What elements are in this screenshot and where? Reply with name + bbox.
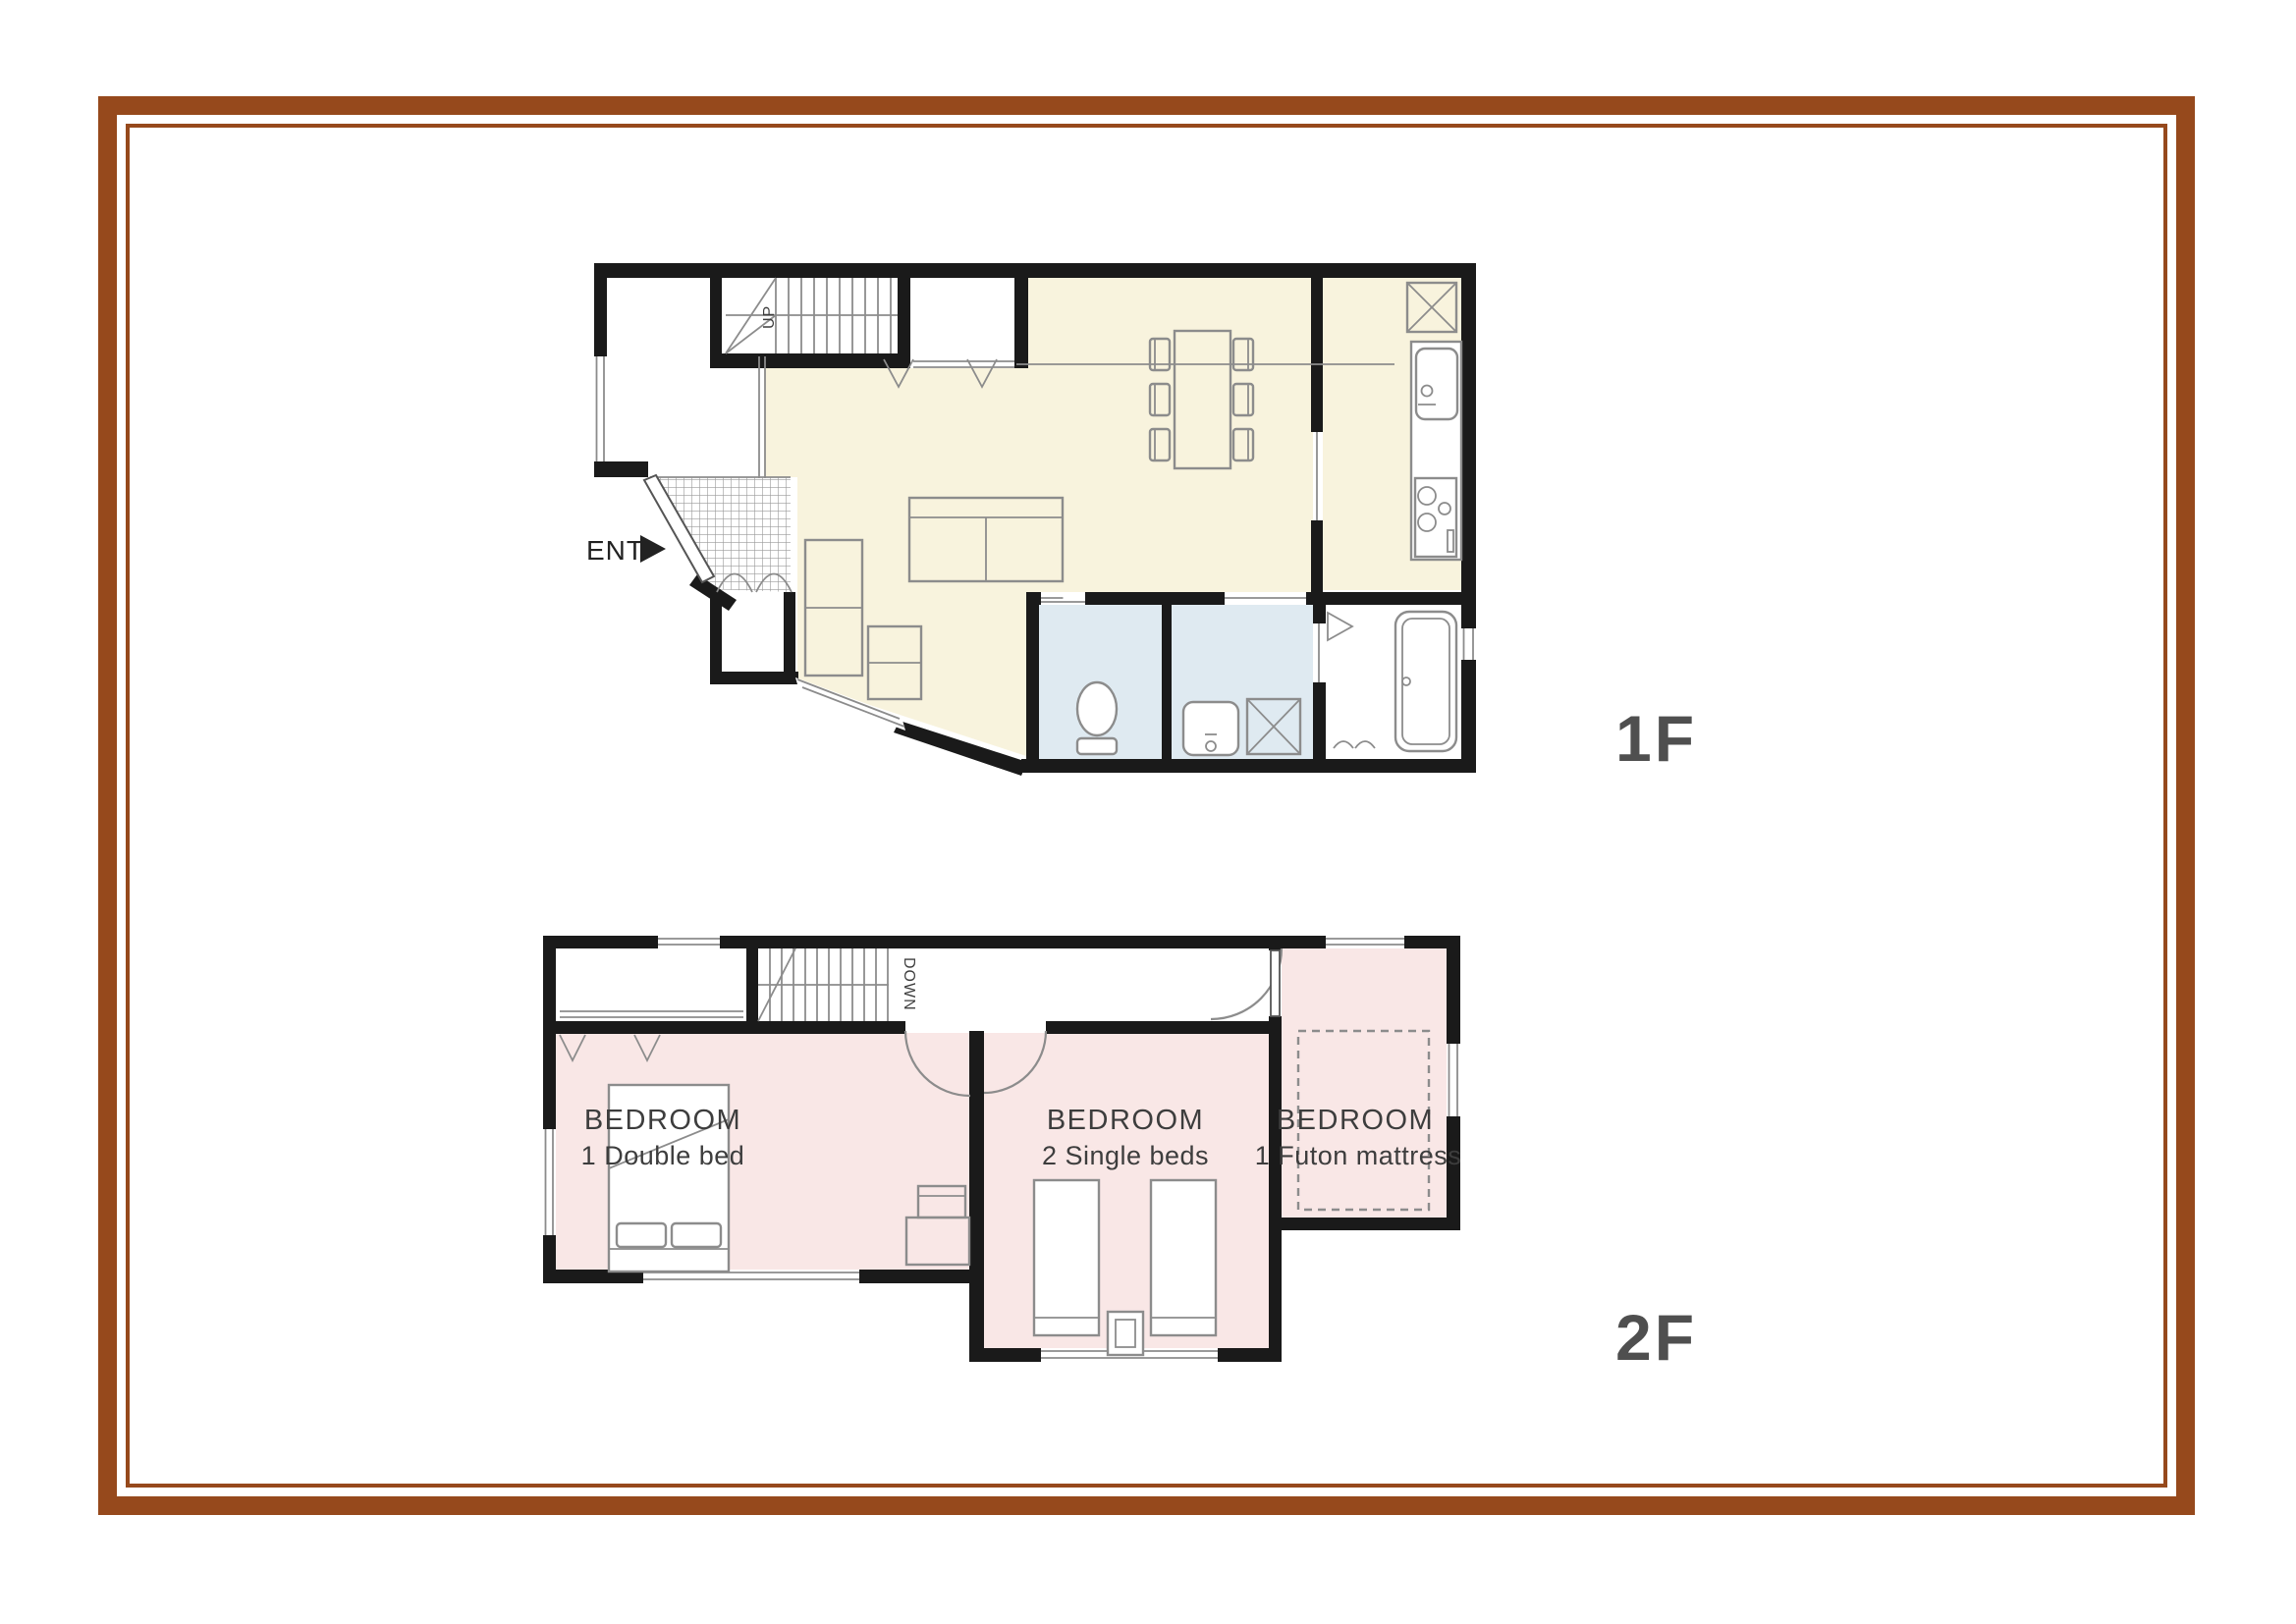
bedroom3-room: [1282, 948, 1447, 1218]
bedroom3-name: BEDROOM: [1277, 1105, 1434, 1136]
bedroom2-beds: 2 Single beds: [1042, 1141, 1209, 1170]
wash-basin: [1183, 702, 1238, 755]
bathtub: [1395, 612, 1456, 751]
stairs-up-label: UP: [761, 305, 778, 329]
floor1-plan: UP: [586, 263, 1697, 776]
floor1-stairs: UP: [726, 278, 898, 353]
entrance-label-group: ENT: [586, 535, 666, 566]
bedroom2-room: [984, 1033, 1269, 1348]
bedroom1-name: BEDROOM: [584, 1105, 741, 1136]
single-bed-1: [1034, 1180, 1099, 1335]
single-bed-2: [1151, 1180, 1216, 1335]
toilet-fixture: [1077, 682, 1117, 754]
bedroom1-beds: 1 Double bed: [581, 1141, 745, 1170]
bedroom2-name: BEDROOM: [1047, 1105, 1204, 1136]
floor2-stairs: DOWN: [758, 948, 917, 1021]
nightstand: [1108, 1312, 1143, 1355]
entrance-arrow-icon: [640, 535, 666, 563]
floor-plan-page: UP: [0, 0, 2296, 1624]
floor1-label: 1F: [1615, 702, 1697, 775]
floor-plan-canvas: UP: [0, 0, 2296, 1624]
entrance-label: ENT: [586, 535, 644, 566]
bedroom3-door: [1271, 950, 1280, 1016]
bedroom3-beds: 1 Futon mattress: [1255, 1141, 1462, 1170]
stairs-down-label: DOWN: [901, 957, 917, 1011]
floor2-plan: DOWN: [543, 936, 1697, 1374]
floor2-label: 2F: [1615, 1301, 1697, 1374]
